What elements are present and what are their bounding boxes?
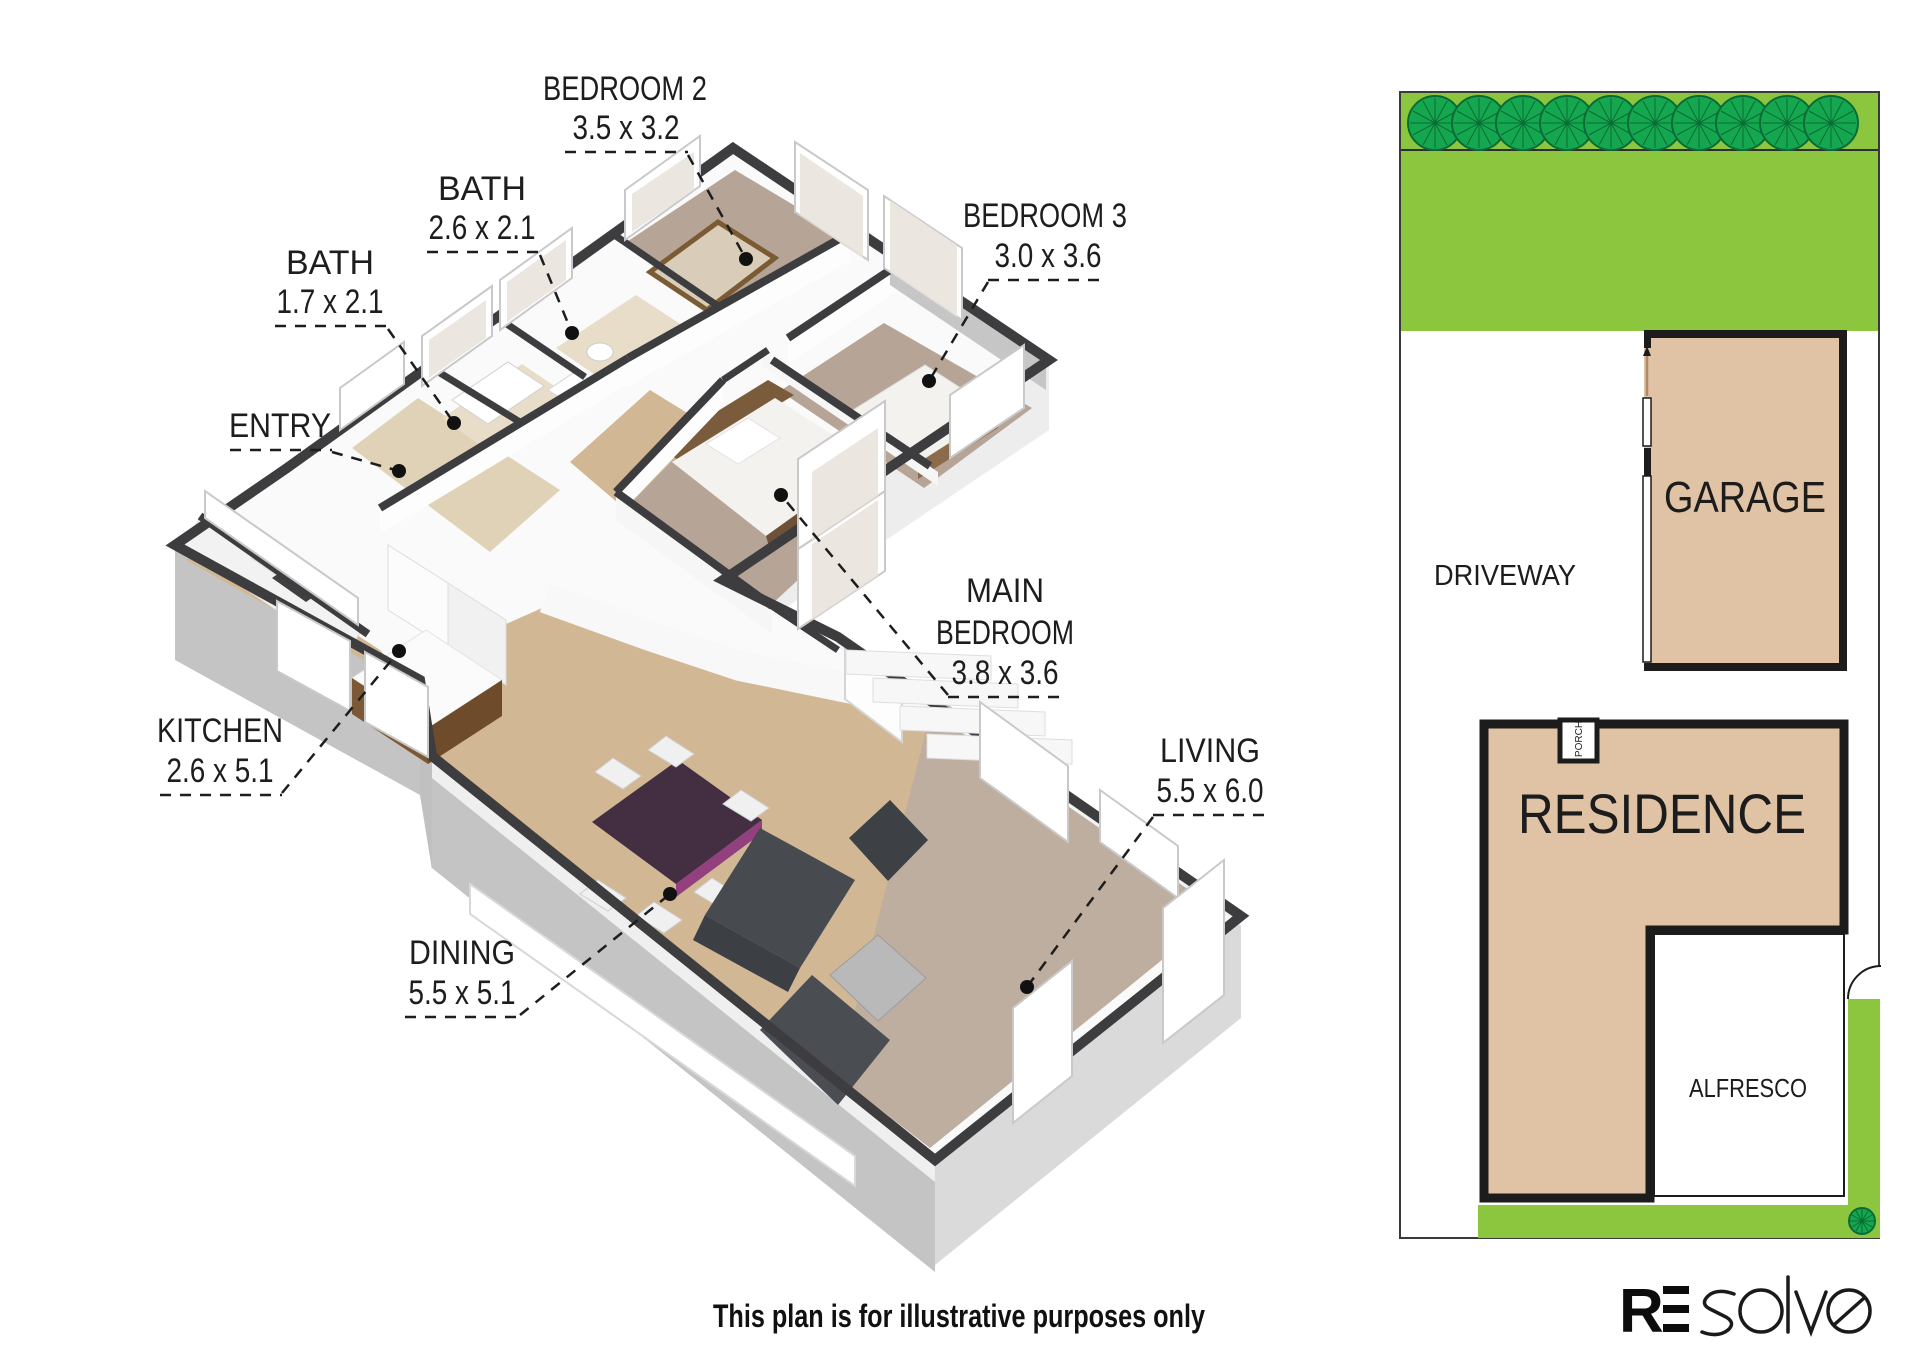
svg-text:KITCHEN: KITCHEN bbox=[157, 712, 283, 750]
svg-text:GARAGE: GARAGE bbox=[1664, 473, 1826, 522]
svg-text:LIVING: LIVING bbox=[1160, 732, 1260, 770]
svg-text:BATH: BATH bbox=[438, 170, 526, 208]
svg-text:ENTRY: ENTRY bbox=[229, 407, 331, 445]
svg-text:MAIN: MAIN bbox=[966, 572, 1044, 610]
svg-text:5.5 x 6.0: 5.5 x 6.0 bbox=[1157, 772, 1264, 810]
svg-text:BATH: BATH bbox=[286, 244, 374, 282]
svg-text:PORCH: PORCH bbox=[1574, 721, 1585, 757]
svg-text:BEDROOM 2: BEDROOM 2 bbox=[543, 70, 707, 108]
svg-text:3.5 x 3.2: 3.5 x 3.2 bbox=[573, 109, 680, 147]
svg-text:DRIVEWAY: DRIVEWAY bbox=[1434, 560, 1576, 592]
svg-text:3.8 x 3.6: 3.8 x 3.6 bbox=[952, 654, 1059, 692]
svg-text:BEDROOM: BEDROOM bbox=[936, 614, 1074, 652]
svg-text:2.6 x 2.1: 2.6 x 2.1 bbox=[429, 209, 536, 247]
svg-text:ALFRESCO: ALFRESCO bbox=[1689, 1073, 1807, 1103]
svg-text:DINING: DINING bbox=[409, 934, 515, 972]
svg-text:BEDROOM 3: BEDROOM 3 bbox=[963, 197, 1127, 235]
svg-text:3.0 x 3.6: 3.0 x 3.6 bbox=[995, 237, 1102, 275]
svg-text:1.7 x 2.1: 1.7 x 2.1 bbox=[277, 283, 384, 321]
svg-text:RESIDENCE: RESIDENCE bbox=[1518, 782, 1806, 845]
svg-text:This plan is for illustrative: This plan is for illustrative purposes o… bbox=[713, 1298, 1205, 1334]
svg-text:2.6 x 5.1: 2.6 x 5.1 bbox=[167, 752, 274, 790]
svg-text:R: R bbox=[1619, 1277, 1664, 1346]
svg-text:5.5 x 5.1: 5.5 x 5.1 bbox=[409, 974, 516, 1012]
